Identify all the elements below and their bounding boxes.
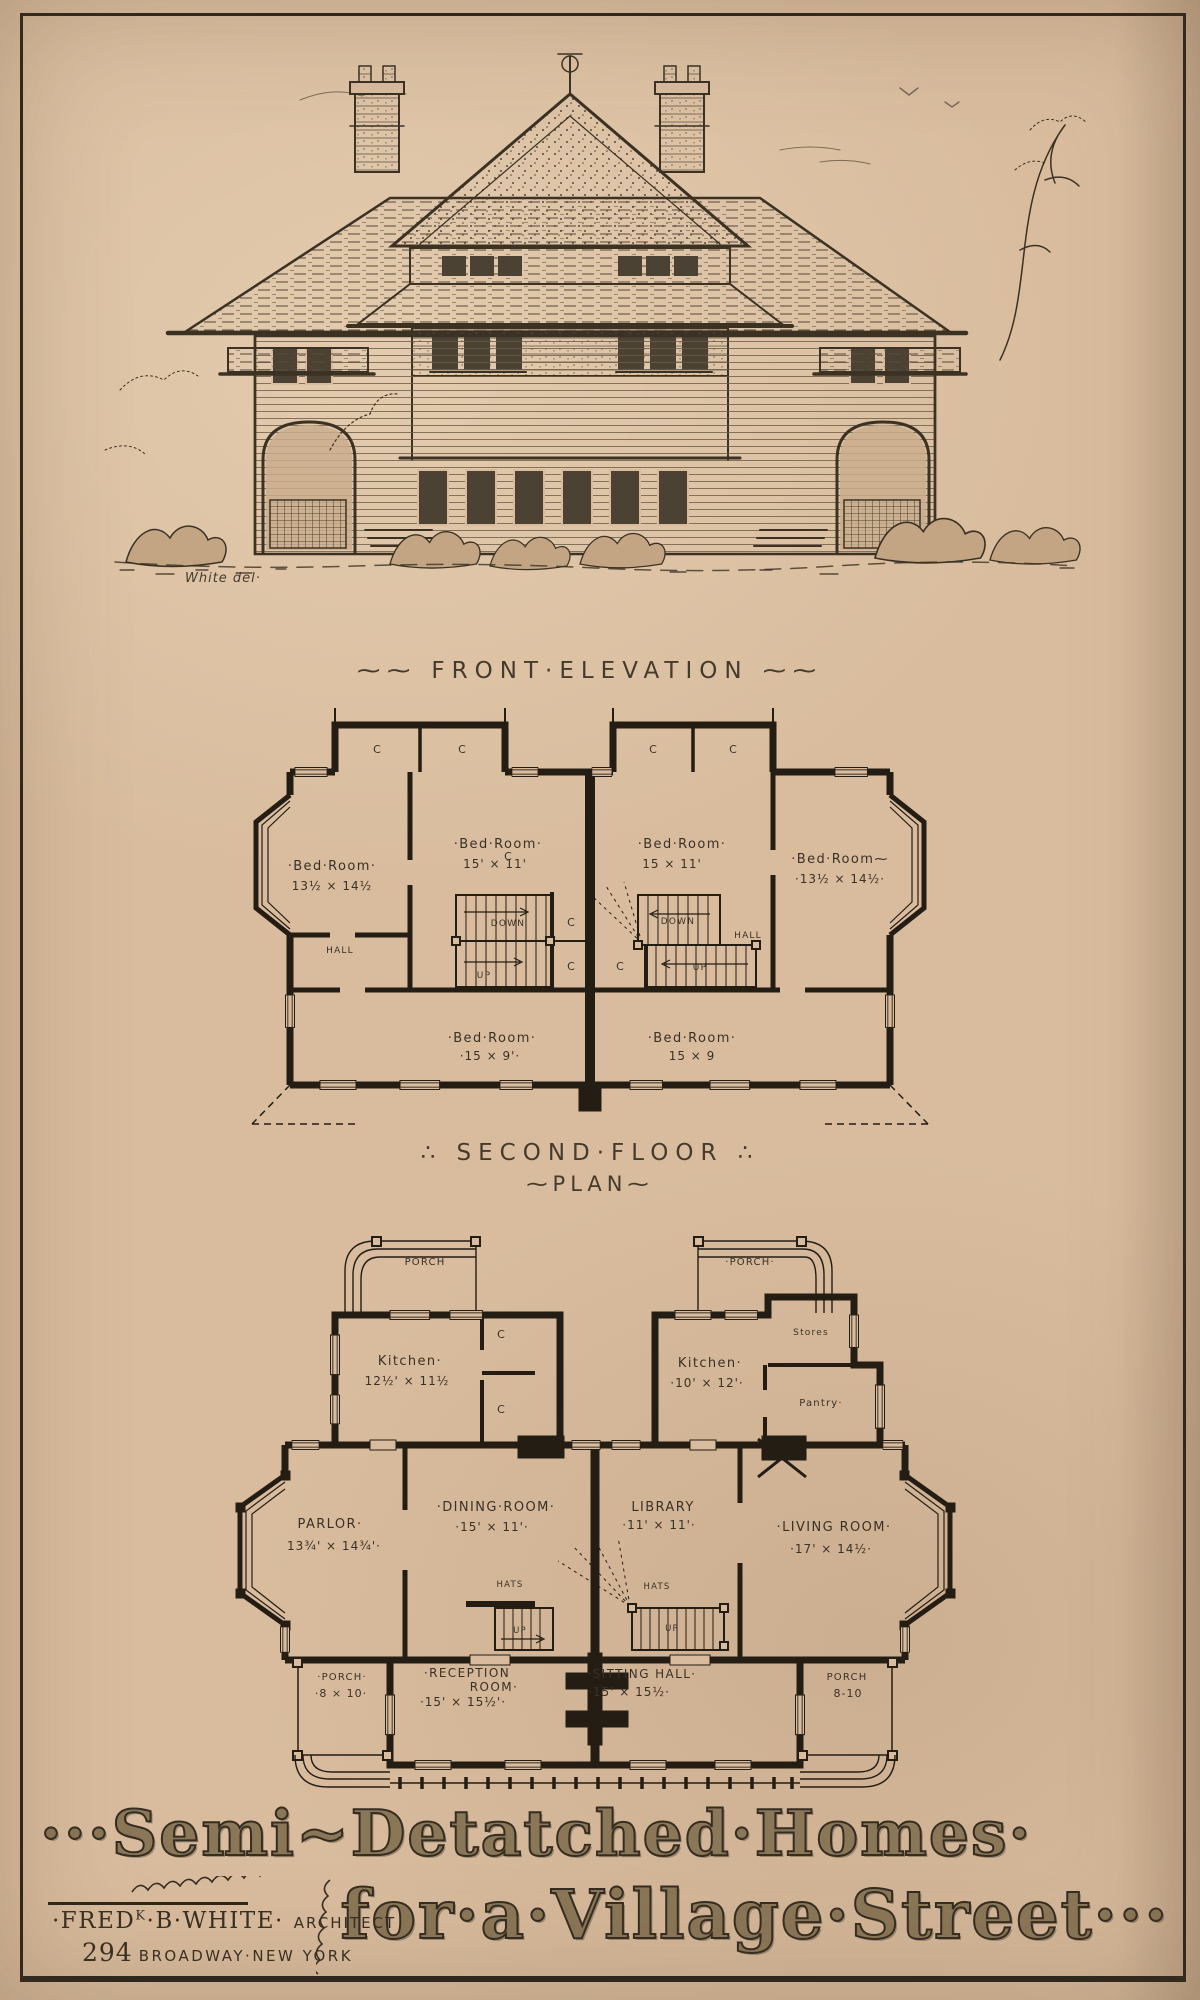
- stairs-reception: [466, 1604, 553, 1650]
- architect-rule-line: [48, 1902, 248, 1905]
- room-dims-bed-mid-right: 15 × 11': [642, 857, 702, 871]
- bay-window-left: [256, 795, 290, 935]
- architect-address: 294 BROADWAY·NEW YORK: [82, 1938, 353, 1967]
- porch-dims-bottom-right: 8-10: [834, 1687, 863, 1700]
- room-dims-bed-back-left: ·15 × 9'·: [460, 1049, 521, 1063]
- room-label-living: ·LIVING ROOM·: [777, 1520, 892, 1535]
- tree-right: [1000, 116, 1086, 360]
- closet-label: C: [567, 960, 575, 973]
- address-number: 294: [82, 1938, 133, 1967]
- chimney-left: [350, 66, 404, 172]
- veranda-top-right: [694, 1237, 832, 1313]
- stairs-down-left: DOWN: [491, 919, 525, 929]
- door-gap: [370, 1440, 396, 1450]
- stairs-up-right: UP: [693, 963, 707, 973]
- plate-title-line2: for·a·Village·Street···: [320, 1880, 1190, 1950]
- room-dims-living: ·17' × 14½·: [790, 1542, 872, 1556]
- stores-label: Stores: [793, 1328, 829, 1338]
- second-floor-caption-line2: ⁓PLAN⁓: [340, 1172, 840, 1196]
- room-label-bed-mid-left: ·Bed·Room·: [454, 837, 543, 852]
- elevation-signature: White del·: [185, 571, 261, 586]
- room-label-bed-back-left: ·Bed·Room·: [448, 1031, 537, 1046]
- closet-label: C: [649, 743, 657, 756]
- stairs-left: [452, 895, 554, 987]
- room-label-library: LIBRARY: [631, 1500, 694, 1515]
- top-closet-boxes: [335, 725, 773, 772]
- bird-marks: [900, 88, 959, 107]
- skirt-roof: [358, 284, 782, 324]
- closet-label: C: [497, 1403, 505, 1416]
- closet-label: C: [458, 743, 466, 756]
- second-floor-walls: [252, 708, 928, 1124]
- room-dims-library: ·11' × 11'·: [622, 1518, 695, 1532]
- room-label-bed-back-right: ·Bed·Room·: [648, 1031, 737, 1046]
- closet-label: C: [497, 1328, 505, 1341]
- front-elevation-drawing: White del·: [60, 30, 1140, 610]
- stairs-up-right: UP: [665, 1624, 679, 1634]
- hall-label-right: HALL: [734, 931, 762, 941]
- architect-role: ARCHITECT: [294, 1914, 396, 1932]
- hall-label-left: HALL: [326, 946, 354, 956]
- room-dims-bed-back-right: 15 × 9: [669, 1049, 716, 1063]
- door-gap: [470, 1655, 510, 1665]
- veranda-top-left: [345, 1237, 480, 1313]
- room-dims-bed-mid-left: 15' × 11': [463, 857, 527, 871]
- porch-dims-bottom-left: ·8 × 10·: [315, 1687, 367, 1700]
- bay-window-living: [900, 1471, 955, 1630]
- rear-chimney: [579, 1085, 601, 1111]
- room-label-kitchen-right: Kitchen·: [678, 1356, 742, 1371]
- room-dims-bed-right: ·13½ × 14½·: [795, 872, 885, 886]
- room-label-bed-left: ·Bed·Room·: [288, 859, 377, 874]
- first-floor-walls: [236, 1237, 955, 1789]
- front-elevation-caption: ⁓⁓ FRONT·ELEVATION ⁓⁓: [340, 658, 840, 684]
- porch-lattice-left: [270, 500, 346, 548]
- plate-page: White del· ⁓⁓ FRONT·ELEVATION ⁓⁓: [0, 0, 1200, 2000]
- stairs-up-left: UP: [477, 971, 491, 981]
- architect-name: ·FREDK·B·WHITE·: [52, 1908, 284, 1934]
- stairs-down-right: DOWN: [661, 917, 695, 927]
- porch-label-bottom-left: ·PORCH·: [317, 1672, 367, 1683]
- architect-name-superscript: K: [135, 1908, 146, 1923]
- stairs-sitting-hall: [558, 1537, 728, 1650]
- closet-label: C: [567, 916, 575, 929]
- second-floor-caption-line1: ∴ SECOND·FLOOR ∴: [340, 1140, 840, 1166]
- door-gap: [690, 1440, 716, 1450]
- room-dims-bed-left: 13½ × 14½: [292, 879, 372, 893]
- room-dims-kitchen-right: ·10' × 12'·: [670, 1376, 743, 1390]
- room-label-sitting-hall: ·SITTING HALL·: [587, 1667, 696, 1681]
- porch-label-top-right: ·PORCH·: [725, 1257, 775, 1268]
- closet-label: C: [616, 960, 624, 973]
- room-dims-reception: ·15' × 15½'·: [420, 1695, 506, 1709]
- room-label-reception-2: ROOM·: [470, 1680, 518, 1694]
- room-label-kitchen-left: Kitchen·: [378, 1354, 442, 1369]
- room-dims-dining: ·15' × 11'·: [455, 1520, 528, 1534]
- door-gap: [670, 1655, 710, 1665]
- address-street-city: BROADWAY·NEW YORK: [139, 1947, 353, 1965]
- room-label-bed-right: ·Bed·Room⁓: [791, 852, 888, 867]
- architect-flourish: [130, 1876, 345, 1902]
- pantry-label: Pantry·: [799, 1398, 843, 1409]
- hats-label-left: HATS: [497, 1580, 524, 1590]
- stairs-up-left: UP: [513, 1626, 527, 1636]
- second-floor-plan: ·Bed·Room· 13½ × 14½ ·Bed·Room· 15' × 11…: [240, 700, 960, 1130]
- chimney-right: [655, 66, 709, 172]
- room-dims-sitting-hall: ·15' × 15½·: [588, 1685, 670, 1699]
- grass-dashes: [120, 568, 1074, 574]
- architect-credit: ·FREDK·B·WHITE· ARCHITECT: [52, 1908, 396, 1934]
- bay-window-parlor: [236, 1471, 290, 1630]
- closet-label: C: [729, 743, 737, 756]
- shrub-left: [105, 371, 198, 454]
- first-floor-plan: PORCH ·PORCH· Kitchen· 12½' × 11½ Kitche…: [220, 1225, 980, 1800]
- bay-window-right: [890, 795, 924, 935]
- room-dims-parlor: 13¾' × 14¾'·: [287, 1539, 381, 1553]
- room-label-parlor: PARLOR·: [298, 1517, 363, 1532]
- closet-label: C: [504, 850, 512, 863]
- closet-label: C: [373, 743, 381, 756]
- elevation-sketch: [105, 54, 1086, 574]
- room-label-dining: ·DINING·ROOM·: [437, 1500, 556, 1515]
- room-label-bed-mid-right: ·Bed·Room·: [638, 837, 727, 852]
- hats-label-right: HATS: [644, 1582, 671, 1592]
- porch-label-bottom-right: PORCH: [827, 1672, 868, 1683]
- porch-label-top-left: PORCH: [405, 1257, 446, 1268]
- plate-title-line1: ···Semi~Detatched·Homes·: [40, 1800, 920, 1866]
- room-label-reception: ·RECEPTION: [424, 1666, 510, 1680]
- room-dims-kitchen-left: 12½' × 11½: [365, 1374, 450, 1388]
